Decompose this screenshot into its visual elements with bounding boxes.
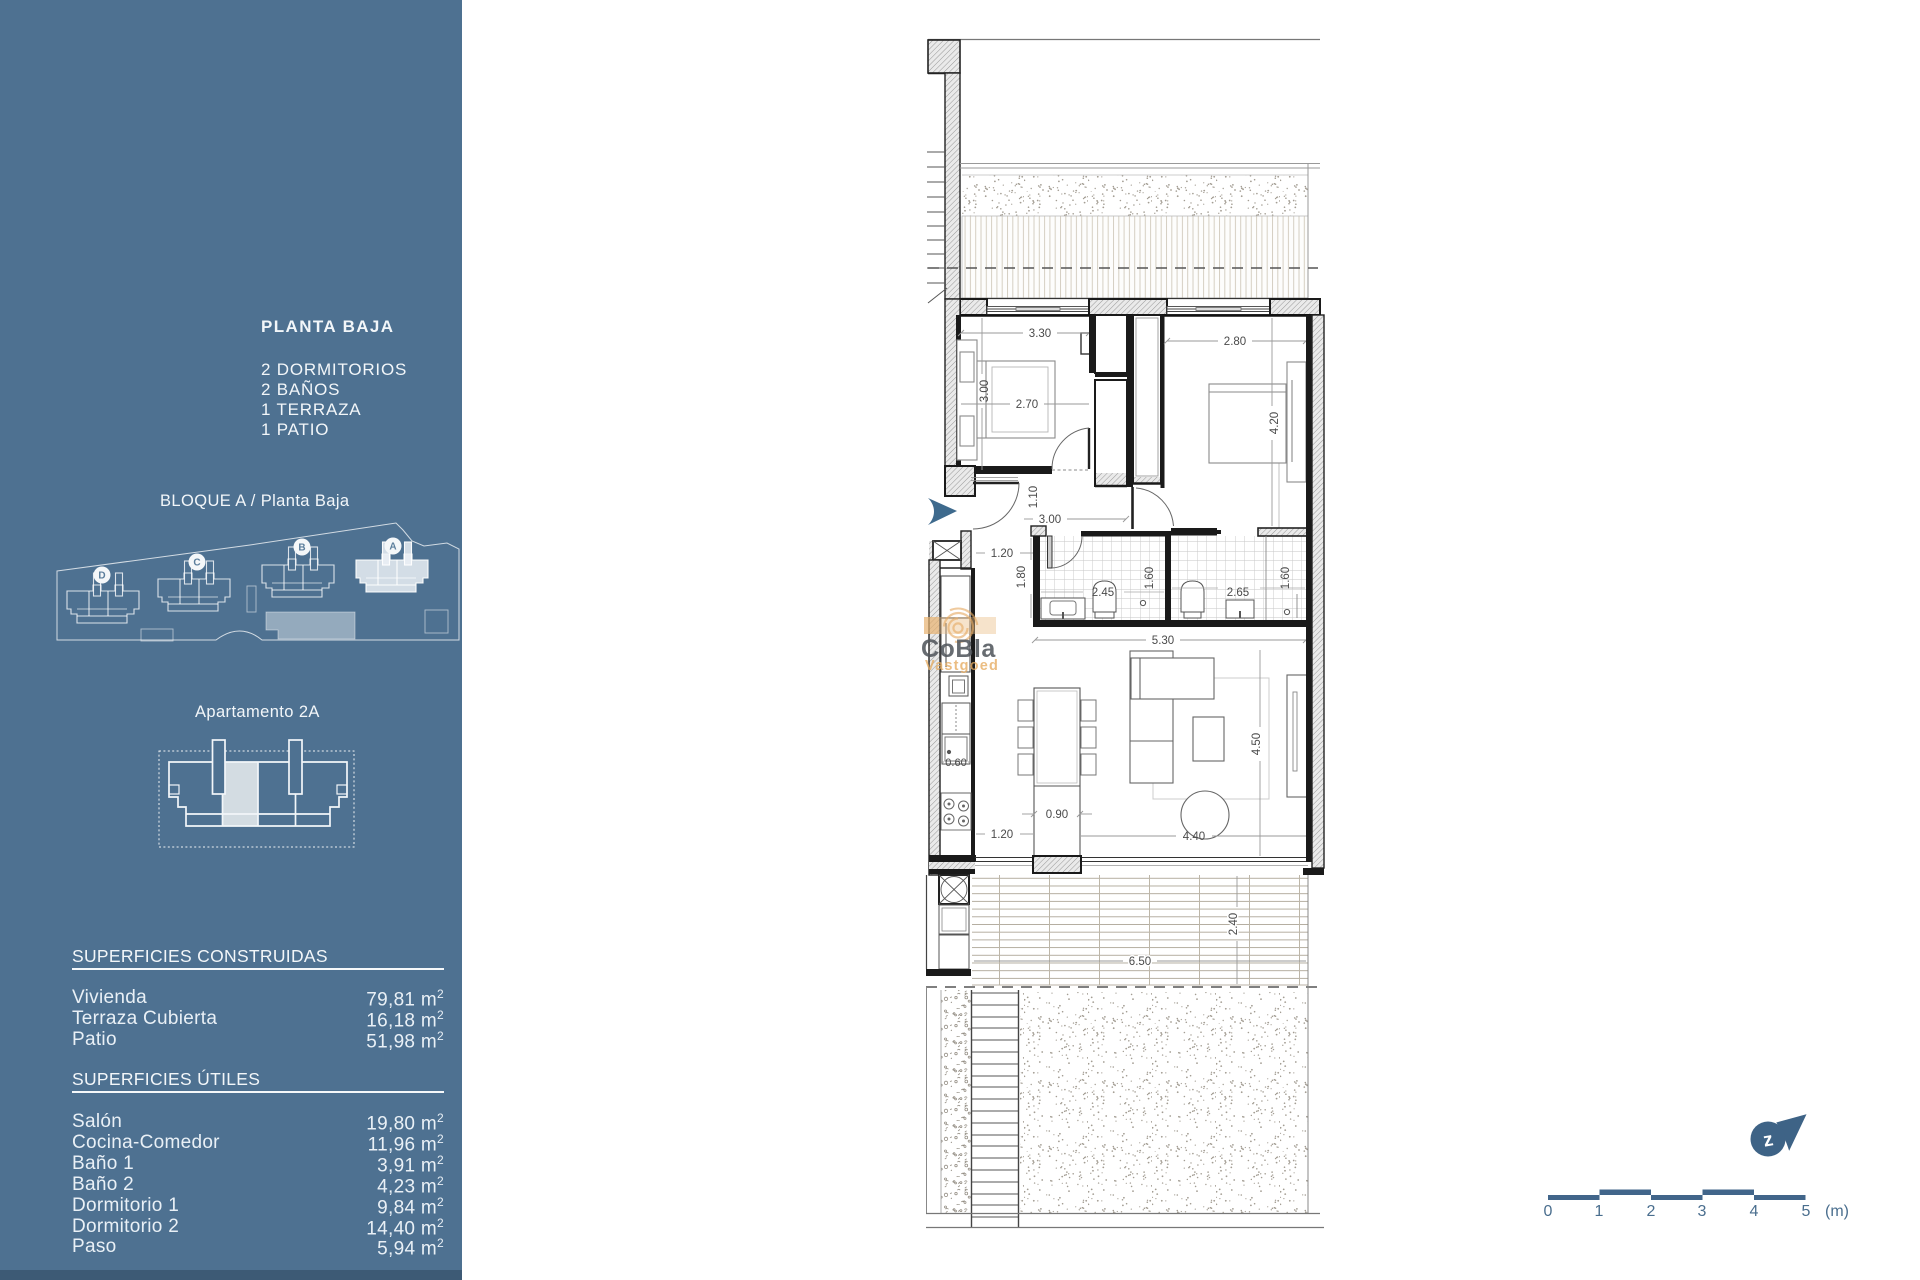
- svg-text:0: 0: [1544, 1203, 1553, 1220]
- svg-text:4: 4: [1750, 1203, 1759, 1220]
- svg-text:1.20: 1.20: [991, 548, 1013, 560]
- svg-text:2.80: 2.80: [1224, 336, 1246, 348]
- svg-text:1.80: 1.80: [1016, 566, 1028, 588]
- svg-text:1.60: 1.60: [1144, 567, 1156, 589]
- svg-text:0.60: 0.60: [945, 757, 966, 769]
- svg-text:2.40: 2.40: [1228, 913, 1240, 935]
- svg-text:4.40: 4.40: [1183, 831, 1205, 843]
- svg-text:1.10: 1.10: [1028, 486, 1040, 508]
- svg-text:1.60: 1.60: [1280, 567, 1292, 589]
- svg-text:0.90: 0.90: [1046, 809, 1068, 821]
- svg-text:Vastgoed: Vastgoed: [925, 658, 999, 674]
- svg-text:1: 1: [1595, 1203, 1604, 1220]
- svg-text:2.45: 2.45: [1092, 587, 1114, 599]
- svg-text:2: 2: [1647, 1203, 1656, 1220]
- svg-text:4.50: 4.50: [1251, 733, 1263, 755]
- svg-text:5.30: 5.30: [1152, 635, 1174, 647]
- svg-text:2.65: 2.65: [1227, 587, 1249, 599]
- svg-text:(m): (m): [1825, 1203, 1849, 1220]
- svg-text:3: 3: [1698, 1203, 1707, 1220]
- svg-text:6.50: 6.50: [1129, 956, 1151, 968]
- svg-text:5: 5: [1802, 1203, 1811, 1220]
- svg-text:1.20: 1.20: [991, 829, 1013, 841]
- svg-text:4.20: 4.20: [1269, 412, 1281, 434]
- svg-text:3.00: 3.00: [1039, 514, 1061, 526]
- svg-text:3.30: 3.30: [1029, 328, 1051, 340]
- svg-text:2.70: 2.70: [1016, 399, 1038, 411]
- svg-text:3.00: 3.00: [979, 380, 991, 402]
